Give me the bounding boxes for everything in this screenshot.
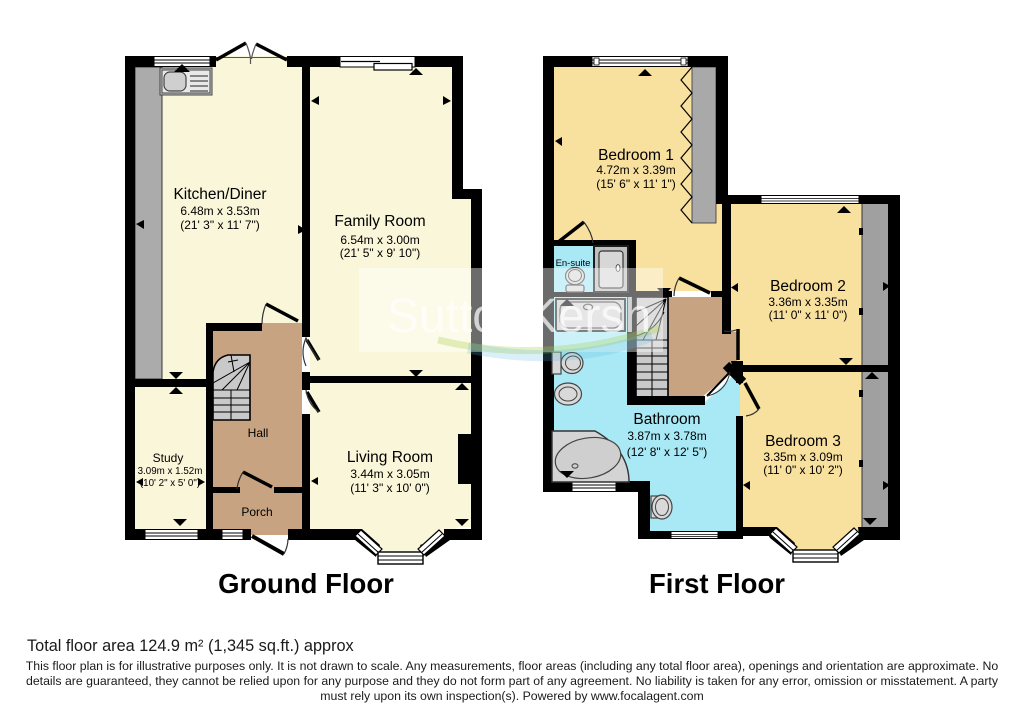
svg-text:SuttonKersh: SuttonKersh [387, 290, 651, 343]
svg-text:(15' 6" x 11' 1"): (15' 6" x 11' 1") [596, 177, 676, 191]
svg-text:This floor plan is for illustr: This floor plan is for illustrative purp… [26, 659, 999, 673]
svg-text:must rely upon its own inspect: must rely upon its own inspection(s). Po… [320, 689, 703, 703]
svg-text:First Floor: First Floor [649, 568, 785, 599]
svg-text:3.87m x 3.78m: 3.87m x 3.78m [627, 429, 706, 443]
svg-text:(21' 5" x 9' 10"): (21' 5" x 9' 10") [340, 246, 420, 260]
svg-text:En-suite: En-suite [556, 258, 591, 269]
svg-text:(12' 8" x 12' 5"): (12' 8" x 12' 5") [627, 445, 707, 459]
svg-text:4.72m x 3.39m: 4.72m x 3.39m [596, 163, 675, 177]
svg-text:Bathroom: Bathroom [633, 411, 700, 428]
svg-text:3.36m x 3.35m: 3.36m x 3.35m [768, 295, 847, 309]
svg-text:6.54m x 3.00m: 6.54m x 3.00m [340, 233, 419, 247]
svg-text:(10' 2" x 5' 0"): (10' 2" x 5' 0") [140, 478, 200, 489]
svg-text:3.44m x 3.05m: 3.44m x 3.05m [350, 467, 429, 481]
svg-text:Porch: Porch [241, 505, 272, 519]
svg-text:3.35m x 3.09m: 3.35m x 3.09m [763, 450, 842, 464]
svg-text:details are guaranteed, they c: details are guaranteed, they cannot be r… [26, 674, 999, 688]
svg-text:Bedroom 1: Bedroom 1 [598, 147, 674, 164]
svg-text:Family Room: Family Room [334, 213, 425, 230]
svg-text:Bedroom 3: Bedroom 3 [765, 433, 841, 450]
svg-text:Hall: Hall [248, 426, 269, 440]
svg-text:(11' 0" x 11' 0"): (11' 0" x 11' 0") [769, 308, 848, 322]
svg-text:(11' 3" x 10' 0"): (11' 3" x 10' 0") [350, 481, 430, 495]
svg-text:3.09m x 1.52m: 3.09m x 1.52m [138, 466, 203, 477]
svg-text:(11' 0" x 10' 2"): (11' 0" x 10' 2") [763, 463, 843, 477]
svg-text:Total floor area 124.9 m² (1,3: Total floor area 124.9 m² (1,345 sq.ft.)… [27, 637, 354, 655]
svg-text:Ground Floor: Ground Floor [218, 568, 394, 599]
svg-text:Kitchen/Diner: Kitchen/Diner [173, 186, 266, 203]
svg-text:Living Room: Living Room [347, 449, 433, 466]
svg-text:Bedroom 2: Bedroom 2 [770, 278, 846, 295]
svg-text:Study: Study [153, 451, 184, 465]
svg-text:6.48m x 3.53m: 6.48m x 3.53m [180, 204, 259, 218]
svg-text:(21' 3" x 11' 7"): (21' 3" x 11' 7") [180, 218, 260, 232]
